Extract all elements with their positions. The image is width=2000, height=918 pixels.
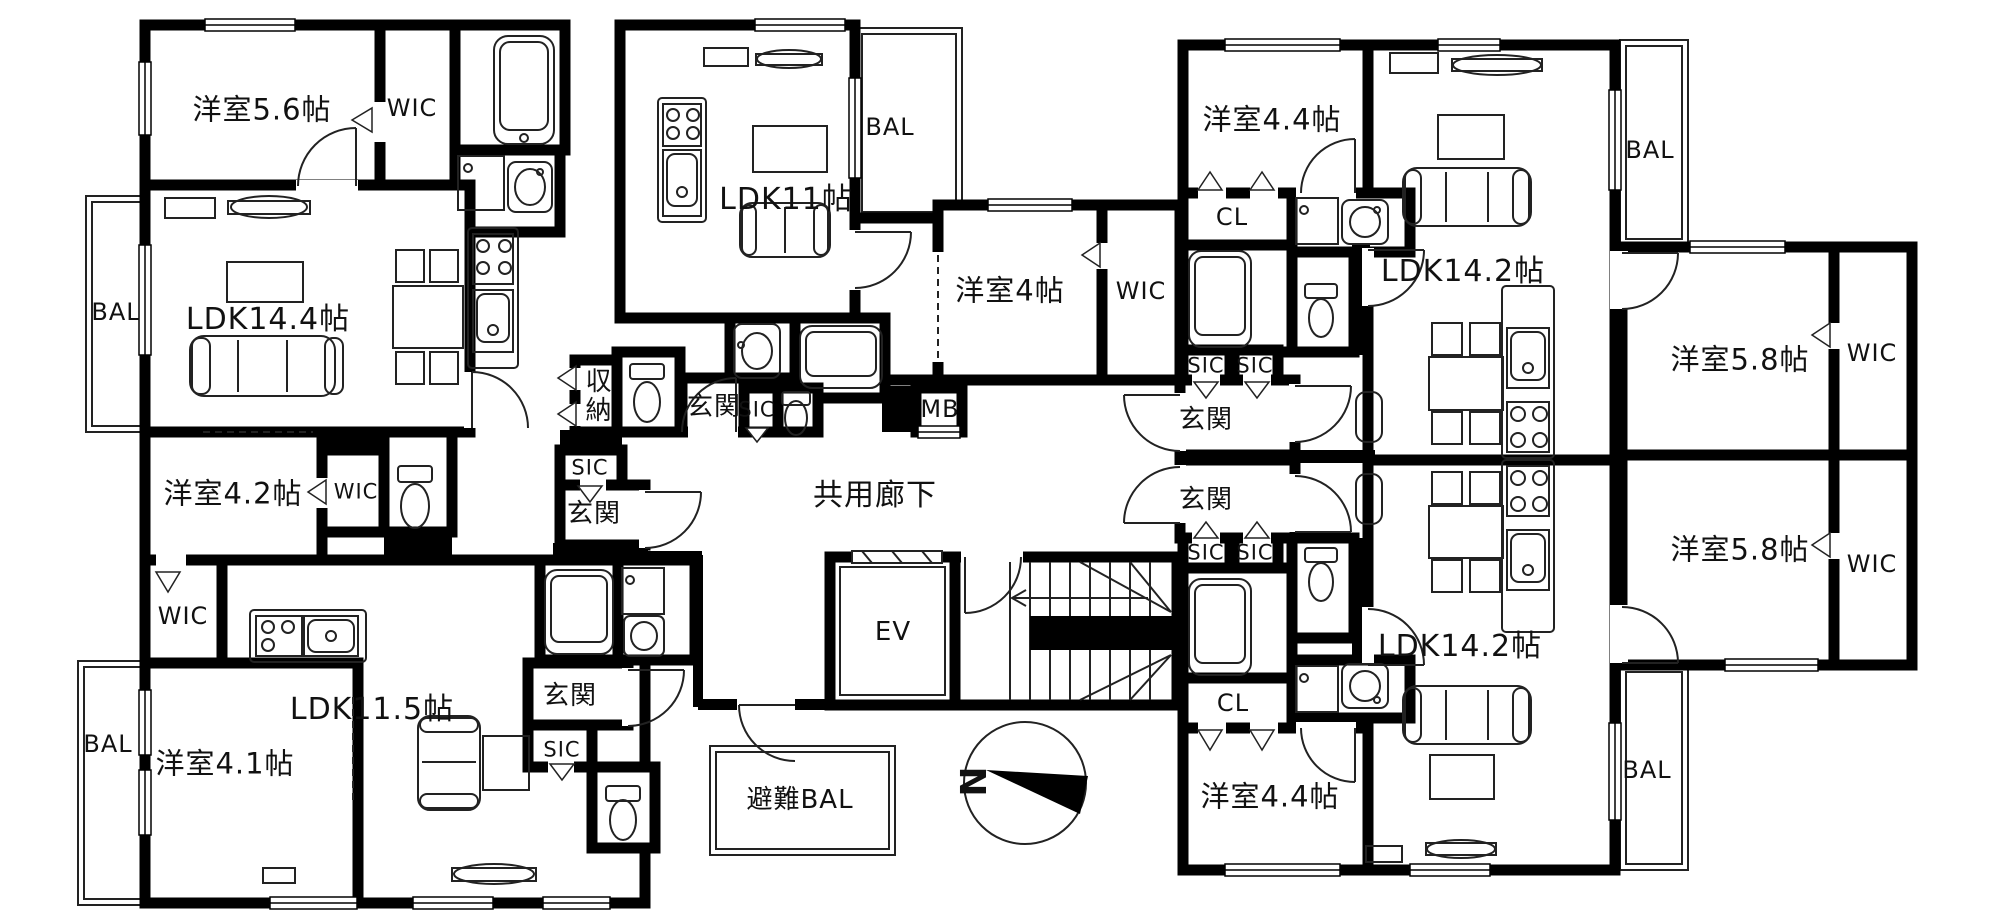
label-sic-d2: SIC [1236,356,1273,377]
label-wic-a1: WIC [387,96,438,120]
label-ldk-14-2-north: LDK14.2帖 [1381,257,1545,287]
label-genkan-e: 玄関 [1179,487,1233,513]
compass-needle [986,770,1088,814]
label-ldk-11: LDK11帖 [719,185,853,215]
label-evacuation-balcony: 避難BAL [746,787,853,813]
label-western-room-4-2: 洋室4.2帖 [163,480,302,509]
label-mb: MB [920,397,959,421]
label-western-room-4-4-north: 洋室4.4帖 [1202,106,1341,135]
label-sic-e2: SIC [1236,543,1273,564]
label-genkan-b: 玄関 [687,394,741,420]
label-ldk-14-2-south: LDK14.2帖 [1378,632,1542,662]
label-sic-c: SIC [543,740,580,761]
label-bal-e: BAL [1622,758,1671,782]
label-elevator: EV [875,619,911,645]
label-ldk-11-5: LDK11.5帖 [290,695,454,725]
label-wic-c: WIC [158,604,209,628]
label-genkan-d: 玄関 [1179,407,1233,433]
label-common-corridor: 共用廊下 [813,481,937,511]
label-sic-e1: SIC [1187,543,1224,564]
room-wash-c [618,560,695,660]
storage-door-marker-2 [558,402,576,426]
label-bal-d: BAL [1625,138,1674,162]
label-sic-b: SIC [738,400,775,421]
label-wic-f2: WIC [1847,552,1898,576]
label-ldk-14-4: LDK14.4帖 [186,305,350,335]
label-cl-south: CL [1217,691,1249,715]
room-toilet-c [592,767,655,848]
floor-plan-drawing [0,0,2000,918]
label-western-room-5-8-north: 洋室5.8帖 [1670,346,1809,375]
storage-door-marker-1 [558,366,576,390]
floor-plan: 洋室5.6帖 WIC BAL LDK14.4帖 洋室4.2帖 WIC 収納 SI… [0,0,2000,918]
label-bal-b: BAL [865,115,914,139]
label-compass-north: N [957,765,993,796]
room-toilet-b [778,388,818,432]
label-genkan-c: 玄関 [543,683,597,709]
label-sic-d1: SIC [1187,356,1224,377]
label-cl-north: CL [1216,205,1248,229]
label-wic-b: WIC [1116,279,1167,303]
label-bal-a: BAL [91,300,140,324]
label-storage: 収納 [583,367,609,425]
label-western-room-5-6: 洋室5.6帖 [192,96,331,125]
label-sic-a: SIC [571,458,608,479]
label-western-room-4-4-south: 洋室4.4帖 [1200,783,1339,812]
label-wic-f1: WIC [1847,341,1898,365]
label-bal-c: BAL [83,732,132,756]
room-toilet-e [1292,538,1354,638]
label-western-room-4: 洋室4帖 [955,277,1064,306]
label-western-room-4-1: 洋室4.1帖 [155,750,294,779]
label-genkan-a: 玄関 [567,501,621,527]
label-wic-a2: WIC [334,482,379,503]
label-western-room-5-8-south: 洋室5.8帖 [1670,536,1809,565]
